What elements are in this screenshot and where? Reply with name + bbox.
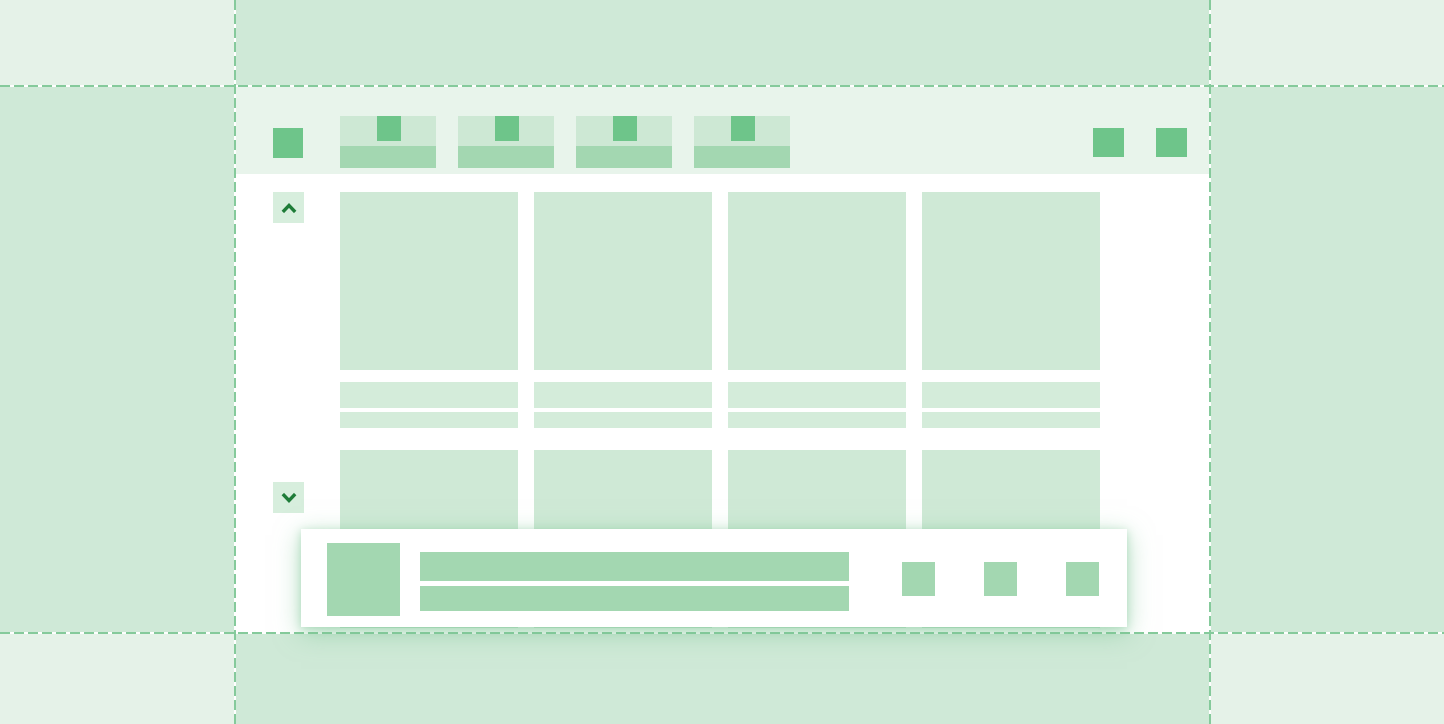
card-thumbnail[interactable] xyxy=(534,192,712,370)
chevron-up-icon xyxy=(279,198,299,218)
background-cell-bottom-center xyxy=(235,634,1210,724)
tab[interactable] xyxy=(576,116,672,168)
chevron-down-icon xyxy=(279,488,299,508)
card-column xyxy=(922,192,1100,428)
tab[interactable] xyxy=(340,116,436,168)
favicon-placeholder-icon xyxy=(613,116,637,141)
card-title-placeholder xyxy=(340,382,518,408)
tab-label-placeholder xyxy=(458,146,554,168)
card-thumbnail[interactable] xyxy=(922,192,1100,370)
tab-label-placeholder xyxy=(694,146,790,168)
card-column xyxy=(534,192,712,428)
card-subtitle-placeholder xyxy=(534,412,712,428)
notification-thumbnail xyxy=(327,543,400,616)
background-cell-top-center xyxy=(235,0,1210,86)
card-thumbnail[interactable] xyxy=(340,192,518,370)
notification-bar xyxy=(301,529,1127,627)
toolbar xyxy=(235,86,1210,174)
background-cell-middle-left xyxy=(0,86,235,634)
tab-top-placeholder xyxy=(694,116,790,146)
tab-label-placeholder xyxy=(340,146,436,168)
window-controls xyxy=(1093,128,1187,157)
scroll-down-button[interactable] xyxy=(273,482,304,513)
card-title-placeholder xyxy=(922,382,1100,408)
tab-top-placeholder xyxy=(340,116,436,146)
card-thumbnail[interactable] xyxy=(728,192,906,370)
notification-text-placeholder xyxy=(420,586,849,611)
notification-action-button[interactable] xyxy=(902,562,935,596)
notification-action-button[interactable] xyxy=(1066,562,1099,596)
notification-title-placeholder xyxy=(420,552,849,581)
card-column xyxy=(340,192,518,428)
dashed-guide-line-top xyxy=(0,85,1444,87)
tab-label-placeholder xyxy=(576,146,672,168)
background-cell-bottom-left xyxy=(0,634,235,724)
card-column xyxy=(728,192,906,428)
background-cell-top-left xyxy=(0,0,235,86)
card-title-placeholder xyxy=(534,382,712,408)
background-cell-bottom-right xyxy=(1210,634,1444,724)
window-control-button[interactable] xyxy=(1093,128,1124,157)
tab[interactable] xyxy=(694,116,790,168)
dashed-guide-line-right xyxy=(1209,0,1211,724)
tab-top-placeholder xyxy=(458,116,554,146)
background-cell-middle-right xyxy=(1210,86,1444,634)
notification-actions xyxy=(902,562,1099,596)
notification-action-button[interactable] xyxy=(984,562,1017,596)
background-cell-top-right xyxy=(1210,0,1444,86)
card-subtitle-placeholder xyxy=(728,412,906,428)
app-square-icon[interactable] xyxy=(273,128,303,158)
favicon-placeholder-icon xyxy=(377,116,401,141)
card-title-placeholder xyxy=(728,382,906,408)
tab[interactable] xyxy=(458,116,554,168)
dashed-guide-line-bottom xyxy=(0,632,1444,634)
favicon-placeholder-icon xyxy=(495,116,519,141)
tab-strip xyxy=(340,116,790,168)
favicon-placeholder-icon xyxy=(731,116,755,141)
canvas xyxy=(0,0,1444,724)
card-subtitle-placeholder xyxy=(922,412,1100,428)
tab-top-placeholder xyxy=(576,116,672,146)
scroll-up-button[interactable] xyxy=(273,192,304,223)
window-control-button[interactable] xyxy=(1156,128,1187,157)
card-grid-row-1 xyxy=(340,192,1100,428)
dashed-guide-line-left xyxy=(234,0,236,724)
card-subtitle-placeholder xyxy=(340,412,518,428)
